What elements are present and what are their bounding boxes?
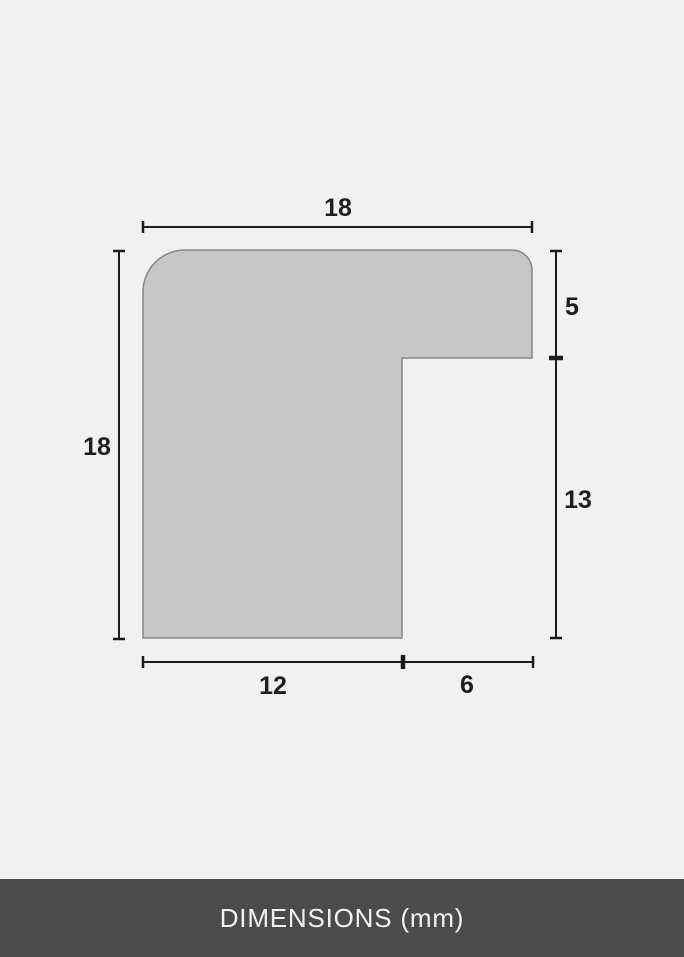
frame-profile-diagram: 18 18 5 13 <box>0 0 684 879</box>
footer-bar: DIMENSIONS (mm) <box>0 879 684 957</box>
dimension-top-width: 18 <box>143 194 532 233</box>
dimension-bottom-widths: 12 6 <box>143 655 533 700</box>
dimension-label-top: 18 <box>324 194 352 222</box>
dimension-right-heights: 5 13 <box>549 251 592 638</box>
page: 18 18 5 13 <box>0 0 684 957</box>
diagram-area: 18 18 5 13 <box>0 0 684 879</box>
dimension-label-right-upper: 5 <box>565 293 579 321</box>
dimension-left-height: 18 <box>83 251 125 639</box>
frame-profile-shape <box>143 250 532 638</box>
footer-label: DIMENSIONS (mm) <box>220 903 465 934</box>
dimension-label-bottom-outer: 6 <box>460 671 474 699</box>
dimension-label-left: 18 <box>83 433 111 461</box>
dimension-label-bottom-inner: 12 <box>259 672 287 700</box>
dimension-label-right-lower: 13 <box>564 486 592 514</box>
